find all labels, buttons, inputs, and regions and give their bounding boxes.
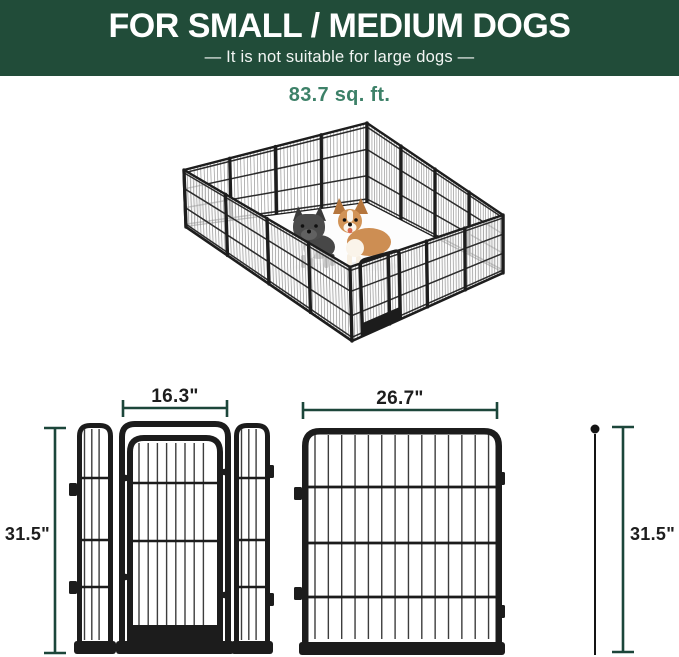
panel-diagrams (69, 424, 505, 655)
connector-rod-diagram (591, 425, 600, 656)
large-width-label: 26.7" (350, 388, 450, 410)
page-title: FOR SMALL / MEDIUM DOGS (109, 9, 571, 45)
playpen-isometric-illustration (150, 115, 530, 360)
header-subtitle: — It is not suitable for large dogs — (205, 48, 475, 67)
panel-dimension-diagram (0, 377, 679, 657)
product-infographic: FOR SMALL / MEDIUM DOGS — It is not suit… (0, 0, 679, 657)
door-width-label: 16.3" (125, 386, 225, 408)
height-label-right: 31.5" (630, 524, 679, 545)
area-label: 83.7 sq. ft. (0, 84, 679, 107)
height-label-left: 31.5" (2, 524, 50, 545)
header-band: FOR SMALL / MEDIUM DOGS — It is not suit… (0, 0, 679, 76)
